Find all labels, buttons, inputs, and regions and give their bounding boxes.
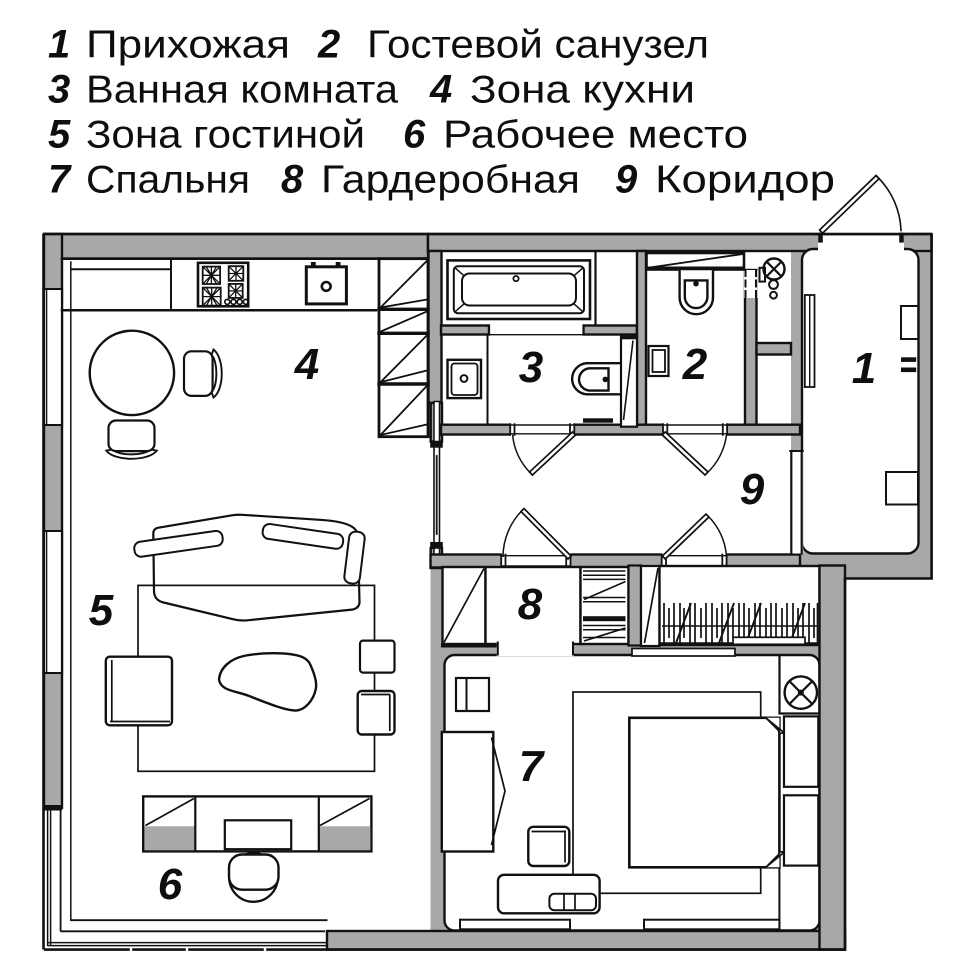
svg-text:9: 9 <box>740 465 765 514</box>
svg-text:Рабочее место: Рабочее место <box>443 114 748 157</box>
svg-text:9: 9 <box>615 158 638 202</box>
svg-text:Ванная комната: Ванная комната <box>86 69 399 112</box>
svg-text:4: 4 <box>294 340 319 389</box>
svg-text:Прихожая: Прихожая <box>86 24 290 67</box>
svg-text:8: 8 <box>281 158 304 202</box>
svg-text:6: 6 <box>158 860 183 909</box>
svg-text:1: 1 <box>852 344 876 393</box>
svg-text:Коридор: Коридор <box>655 159 835 202</box>
svg-text:Гардеробная: Гардеробная <box>321 159 580 202</box>
svg-text:5: 5 <box>48 113 71 157</box>
svg-text:5: 5 <box>89 586 114 635</box>
svg-text:3: 3 <box>519 343 543 392</box>
svg-text:8: 8 <box>518 580 543 629</box>
svg-text:Зона кухни: Зона кухни <box>470 69 695 112</box>
svg-text:7: 7 <box>48 158 72 202</box>
svg-text:7: 7 <box>519 742 546 791</box>
svg-text:3: 3 <box>48 68 70 112</box>
svg-text:2: 2 <box>682 340 708 389</box>
svg-text:1: 1 <box>48 23 70 67</box>
svg-text:6: 6 <box>403 113 426 157</box>
svg-text:Гостевой санузел: Гостевой санузел <box>367 24 709 67</box>
svg-text:Зона гостиной: Зона гостиной <box>86 114 365 157</box>
svg-text:Спальня: Спальня <box>86 159 250 202</box>
svg-text:2: 2 <box>317 23 340 67</box>
svg-text:4: 4 <box>429 68 452 112</box>
